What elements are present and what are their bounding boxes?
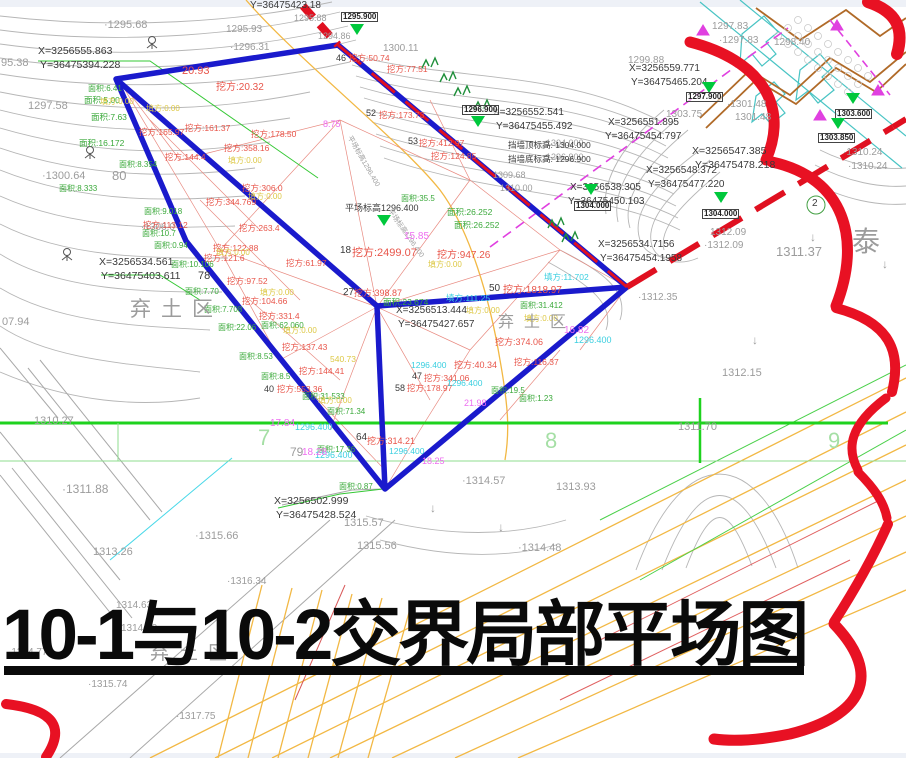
map-label: 1296.400 <box>574 336 612 345</box>
map-label: 面积:26.252 <box>447 208 492 217</box>
map-label: ·1310.24 <box>848 162 887 172</box>
map-label: Y=36475454.1958 <box>600 254 682 264</box>
map-label: ↓ <box>882 258 888 270</box>
map-label: X=3256555.863 <box>38 46 112 57</box>
map-label: 1295.88 <box>294 14 327 23</box>
region-label: 弃土区 <box>130 293 223 323</box>
region-label: 弃土区 <box>498 308 576 332</box>
elevation-marker-label: 1296.900 <box>462 105 499 115</box>
map-label: 挖方:144.4 <box>165 153 206 162</box>
elevation-marker-icon <box>377 215 391 226</box>
map-label: 填方:0.00 <box>260 289 294 297</box>
map-label: Y=36475465.204 <box>631 78 707 88</box>
map-label: ·1311.88 <box>62 483 108 495</box>
contour-lines <box>0 2 906 570</box>
map-label: 挖方:20.32 <box>216 83 264 93</box>
map-label: ·1315.74 <box>88 680 127 690</box>
map-label: 挡墙顶标高: 1304.000 <box>508 141 591 150</box>
map-label: 面积:26.252 <box>454 221 499 230</box>
map-label: 挖方:97.52 <box>227 277 268 286</box>
elevation-marker-icon <box>831 118 845 129</box>
map-label: 挖方:412.97 <box>419 139 464 148</box>
map-label: 27 <box>343 288 354 298</box>
map-label: 1310.27 <box>34 416 74 427</box>
map-label: 填方:0.00 <box>248 193 282 201</box>
map-label: Y=36475403.611 <box>101 271 181 282</box>
map-label: 面积:16.172 <box>79 139 124 148</box>
map-label: ·1310.24 <box>843 148 882 158</box>
map-label: 1297.58 <box>28 101 68 112</box>
map-label: Y=36475394.228 <box>40 60 120 71</box>
map-label: 面积:8.333 <box>59 185 97 193</box>
map-label: 挖方:40.34 <box>454 361 497 370</box>
map-label: 面积:9.018 <box>144 208 182 216</box>
map-label: 挖方:1818.97 <box>503 286 562 296</box>
map-label: 46 <box>336 54 346 63</box>
map-label: X=3256559.771 <box>629 64 700 74</box>
map-label: 面积:71.34 <box>327 408 365 416</box>
map-label: 面积:0.94 <box>154 242 188 250</box>
map-label: 40 <box>264 385 274 394</box>
map-label: Y=36475427.657 <box>398 320 474 330</box>
map-label: 18.28 <box>302 448 327 458</box>
map-label: 挖方:2499.07 <box>352 248 417 259</box>
map-label: ↓ <box>810 231 816 243</box>
map-label: 1311.37 <box>776 245 822 258</box>
map-label: 挖方:165.97 <box>139 128 184 137</box>
map-label: X=3256513.444 <box>396 306 467 316</box>
map-label: 挖方:263.4 <box>239 224 280 233</box>
map-label: 填方:0.00 <box>318 397 352 405</box>
map-label: 面积:6.41 <box>88 85 122 93</box>
map-label: 挖方:553.36 <box>277 385 322 394</box>
map-label: 1311.70 <box>678 422 717 433</box>
map-label: 1310.00 <box>500 184 533 193</box>
map-label: 1297.83 <box>712 22 748 32</box>
map-label: 8.75 <box>323 120 341 129</box>
map-label: 1315.56 <box>357 541 397 552</box>
map-label: 540.73 <box>330 355 356 364</box>
map-label: 面积:35.5 <box>401 195 435 203</box>
map-label: 面积:8.5 <box>261 373 290 381</box>
map-label: 泰 <box>852 228 880 256</box>
map-label: Y=36475423.18 <box>250 1 321 11</box>
map-label: ·1317.75 <box>176 712 215 722</box>
map-label: 挖方:124.85 <box>431 152 476 161</box>
map-label: 挖方:116.37 <box>514 358 559 367</box>
map-label: 挖方:398.87 <box>354 289 402 298</box>
map-label: 21.98 <box>464 399 487 408</box>
map-label: 18.25 <box>422 457 445 466</box>
map-label: 1312.15 <box>722 368 762 379</box>
map-label: 64 <box>356 433 367 443</box>
map-label: 填方:0.00 <box>428 261 462 269</box>
title-underline <box>4 666 804 675</box>
map-label: 1294.86 <box>318 32 351 41</box>
map-label: X=3256534.561 <box>99 257 173 268</box>
map-label: 挡墙底标高: 1296.900 <box>508 155 591 164</box>
map-label: ·1296.31 <box>230 43 269 53</box>
map-label: 挖方:374.06 <box>495 338 543 347</box>
map-label: 挖方:61.97 <box>286 259 327 268</box>
map-label: 填方:0.00 <box>283 327 317 335</box>
map-label: X=3256502.999 <box>274 496 348 507</box>
map-label: 挖方:50.74 <box>349 54 390 63</box>
map-label: X=3256548.372 <box>646 166 717 176</box>
map-label: 填方:0.00 <box>216 249 250 257</box>
map-label: 面积:10.7 <box>142 230 176 238</box>
elevation-marker-label: 1295.900 <box>341 12 378 22</box>
map-label: 挖方:178.50 <box>251 130 296 139</box>
elevation-marker-icon <box>584 184 598 195</box>
map-label: 面积:8.354 <box>119 161 157 169</box>
map-label: 1296.400 <box>295 423 333 432</box>
map-label: ·1315.66 <box>195 531 238 542</box>
map-label: 面积:0.87 <box>339 483 373 491</box>
elevation-marker-label: 1304.000 <box>702 209 739 219</box>
map-label: 平场标高1296.400 <box>345 204 419 213</box>
map-label: ·1295.68 <box>104 20 147 31</box>
map-label: 面积:8.53 <box>239 353 273 361</box>
map-label: 面积:22.06 <box>218 324 256 332</box>
map-label: 填方:0.00 <box>100 98 134 106</box>
map-label: 挖方:104.66 <box>242 297 287 306</box>
map-label: 填方:0.00 <box>466 307 500 315</box>
map-label: Y=36475455.492 <box>496 122 572 132</box>
map-label: 挖方:178.97 <box>407 384 452 393</box>
map-label: 挖方:358.16 <box>224 144 269 153</box>
grid-number: 9 <box>828 428 840 454</box>
map-label: 1296.400 <box>389 447 424 456</box>
map-label: 47 <box>412 372 422 381</box>
map-label: X=3256547.385 <box>692 146 766 157</box>
map-label: 挖方:173.73 <box>379 111 424 120</box>
map-label: Y=36475428.524 <box>276 510 356 521</box>
map-label: 95.38 <box>1 58 29 69</box>
map-label: 挖方:113.12 <box>143 221 188 230</box>
map-label: ·1312.35 <box>638 293 677 303</box>
grid-number: 7 <box>258 425 270 451</box>
map-label: 1313.93 <box>556 482 596 493</box>
map-label: Y=36475454.797 <box>605 132 681 142</box>
map-label: ↓ <box>498 521 504 533</box>
map-label: 80 <box>112 169 126 182</box>
map-label: 面积:7.63 <box>91 113 127 122</box>
map-label: 挖方:137.43 <box>282 343 327 352</box>
elevation-marker-label: 1304.000 <box>574 201 611 211</box>
map-label: 58 <box>395 384 405 393</box>
map-label: 78 <box>198 271 210 282</box>
elevation-marker-icon <box>471 116 485 127</box>
map-label: 20.93 <box>182 66 210 77</box>
map-label: 2 <box>812 199 818 209</box>
map-label: 填方:111.25 <box>446 294 490 303</box>
map-label: ·1312.09 <box>704 241 743 251</box>
map-label: 1309.68 <box>493 171 526 180</box>
map-label: ↓ <box>752 334 758 346</box>
map-label: 面积:23.674 <box>383 298 428 307</box>
map-label: 52 <box>366 109 376 118</box>
map-label: 1313.26 <box>93 547 133 558</box>
elevation-marker-icon <box>350 24 364 35</box>
map-label: 1295.93 <box>226 25 262 35</box>
map-label: 53 <box>408 137 418 146</box>
elevation-marker-icon <box>846 93 860 104</box>
elevation-marker-label: 1303.850 <box>818 133 855 143</box>
map-label: ·1297.83 <box>719 36 758 46</box>
map-label: ·1301.48 <box>727 100 766 110</box>
map-label: 1296.400 <box>411 361 446 370</box>
map-label: 填方:11.702 <box>544 273 589 282</box>
map-label: 面积:1.23 <box>519 395 553 403</box>
map-label: X=3256552.541 <box>493 108 564 118</box>
map-label: 挖方:314.21 <box>367 437 415 446</box>
grid-number: 8 <box>545 428 557 454</box>
map-label: 挖方:331.4 <box>259 312 300 321</box>
map-label: 挖方:77.51 <box>387 65 428 74</box>
map-label: ·1300.64 <box>42 171 85 182</box>
elevation-marker-icon <box>714 192 728 203</box>
map-label: 50 <box>489 284 500 294</box>
map-label: 1296.400 <box>447 379 482 388</box>
map-label: Y=36475477.220 <box>648 180 724 190</box>
map-label: 挖方:161.37 <box>185 124 230 133</box>
elevation-marker-label: 1297.900 <box>686 92 723 102</box>
map-label: X=3256534.7156 <box>598 240 674 250</box>
map-label: 17.84 <box>270 419 295 429</box>
drawing-title: 10-1与10-2交界局部平场图 <box>2 578 806 680</box>
map-label: 18 <box>340 246 351 256</box>
map-label: 填方:0.00 <box>228 157 262 165</box>
map-label: 15.85 <box>404 232 429 242</box>
map-label: 填方:0.00 <box>146 105 180 113</box>
map-label: 1312.09 <box>710 228 746 238</box>
map-label: ·1314.57 <box>462 476 505 487</box>
map-label: 07.94 <box>2 317 30 328</box>
map-label: ↓ <box>430 502 436 514</box>
map-label: X=3256538.305 <box>570 183 641 193</box>
map-label: ·1314.48 <box>518 543 561 554</box>
map-label: 1298.40 <box>774 38 810 48</box>
map-label: 挖方:144.41 <box>299 367 344 376</box>
map-label: X=3256551.895 <box>608 118 679 128</box>
map-label: 1301.48 <box>735 113 771 123</box>
